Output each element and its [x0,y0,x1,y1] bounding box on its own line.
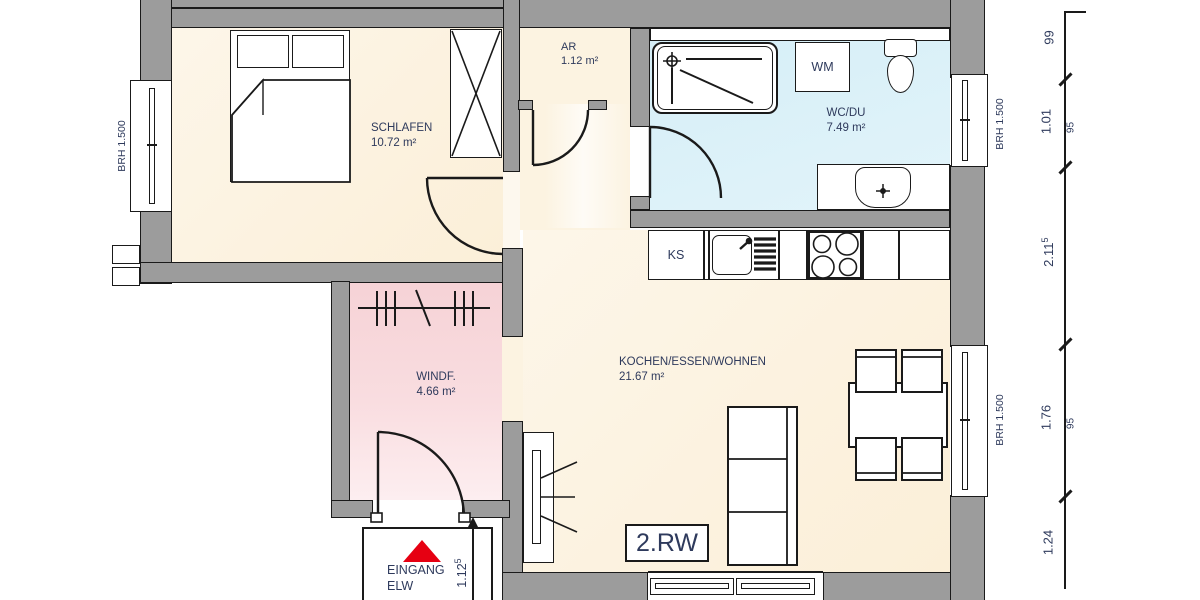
label-wm: WM [795,59,850,75]
door-entrance [371,432,470,522]
dimension-value-3-sup: 5 [1040,237,1050,242]
door-bathroom [650,127,721,198]
room-area: 10.72 m² [371,136,432,151]
chair-backrest-lines [857,357,941,473]
entrance-label: EINGANG ELW [387,563,445,594]
brh-label-bath-window: BRH 1.500 [994,89,1006,159]
bed-blanket [232,80,350,182]
room-name: WC/DU [806,106,886,121]
room-name: AR [561,40,598,54]
dimension-value-4-sub: 95 [1066,409,1077,439]
room-area: 7.49 m² [806,121,886,136]
dimension-chain-top-stub [1064,11,1086,13]
dimension-value-1: 99 [1042,8,1057,68]
entrance-dim-value: 1.125 [453,543,469,600]
kitchen-sink-faucet-icon [740,238,776,269]
stove-burners-icon [812,233,858,278]
room-area: 1.12 m² [561,54,598,68]
washbasin-tap-icon [876,184,890,198]
dimension-value-2: 1.01 [1039,92,1054,152]
brh-label-living-window: BRH 1.500 [994,385,1006,455]
unit-label: 2.RW [636,529,698,558]
entrance-dim-main: 1.12 [455,563,469,587]
radiator-fins [541,462,577,532]
dimension-value-4: 1.76 [1039,388,1054,448]
shower-head-icon [663,52,762,104]
room-area: 21.67 m² [619,370,766,385]
room-label-ar: AR 1.12 m² [561,40,598,69]
floorplan-canvas: SCHLAFEN 10.72 m² AR 1.12 m² WC/DU 7.49 … [0,0,1200,600]
room-label-wcdu: WC/DU 7.49 m² [806,106,886,136]
room-label-schlafen: SCHLAFEN 10.72 m² [371,121,432,151]
door-ar [533,110,588,165]
entrance-label-line1: EINGANG [387,563,445,579]
wardrobe-x-icon [452,31,500,156]
dimension-value-3-main: 2.11 [1041,243,1056,267]
entrance-dim-sup: 5 [453,558,463,563]
coat-rack-icon [358,290,490,326]
brh-label-left-window: BRH 1.500 [116,111,128,181]
dimension-value-5: 1.24 [1041,513,1056,573]
unit-label-box: 2.RW [625,524,709,562]
dimension-value-3: 2.115 [1040,222,1056,282]
room-label-wohnen: KOCHEN/ESSEN/WOHNEN 21.67 m² [619,355,766,385]
dimension-chain-line [1064,11,1066,589]
entrance-label-line2: ELW [387,579,445,595]
dimension-value-2-sub: 95 [1066,113,1077,143]
label-ks: KS [649,247,703,263]
drainboard-stripes [754,239,776,269]
room-label-windf: WINDF. 4.66 m² [396,370,476,400]
sofa-cushion-lines [728,408,787,564]
room-name: KOCHEN/ESSEN/WOHNEN [619,355,766,370]
room-name: WINDF. [396,370,476,385]
linework-layer [0,0,1200,600]
room-name: SCHLAFEN [371,121,432,136]
room-area: 4.66 m² [396,385,476,400]
door-bedroom [427,178,503,254]
